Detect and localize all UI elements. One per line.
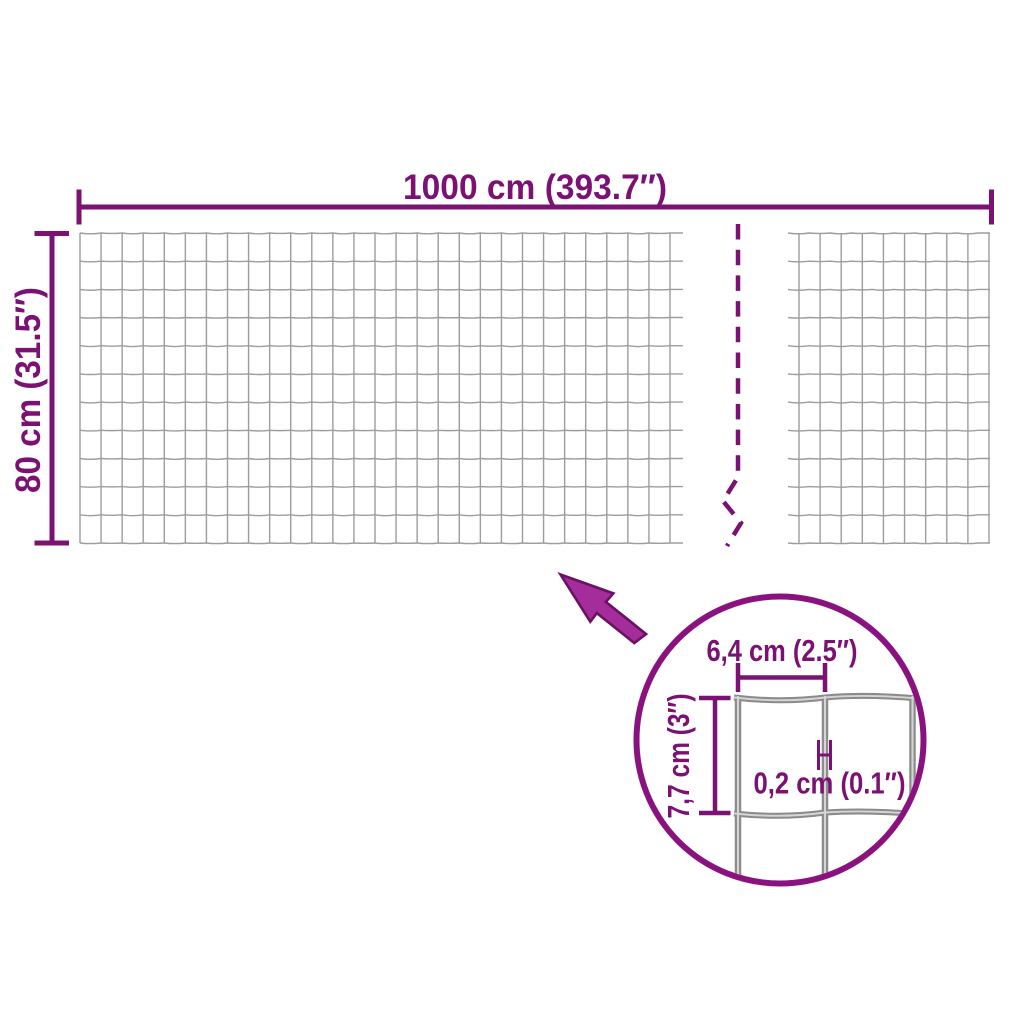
svg-text:80 cm (31.5″): 80 cm (31.5″) [9,287,48,493]
svg-text:1000 cm (393.7″): 1000 cm (393.7″) [403,168,667,207]
svg-text:7,7 cm (3″): 7,7 cm (3″) [662,694,696,819]
svg-text:6,4 cm (2.5″): 6,4 cm (2.5″) [707,634,858,668]
svg-text:0,2 cm (0.1″): 0,2 cm (0.1″) [754,767,906,801]
